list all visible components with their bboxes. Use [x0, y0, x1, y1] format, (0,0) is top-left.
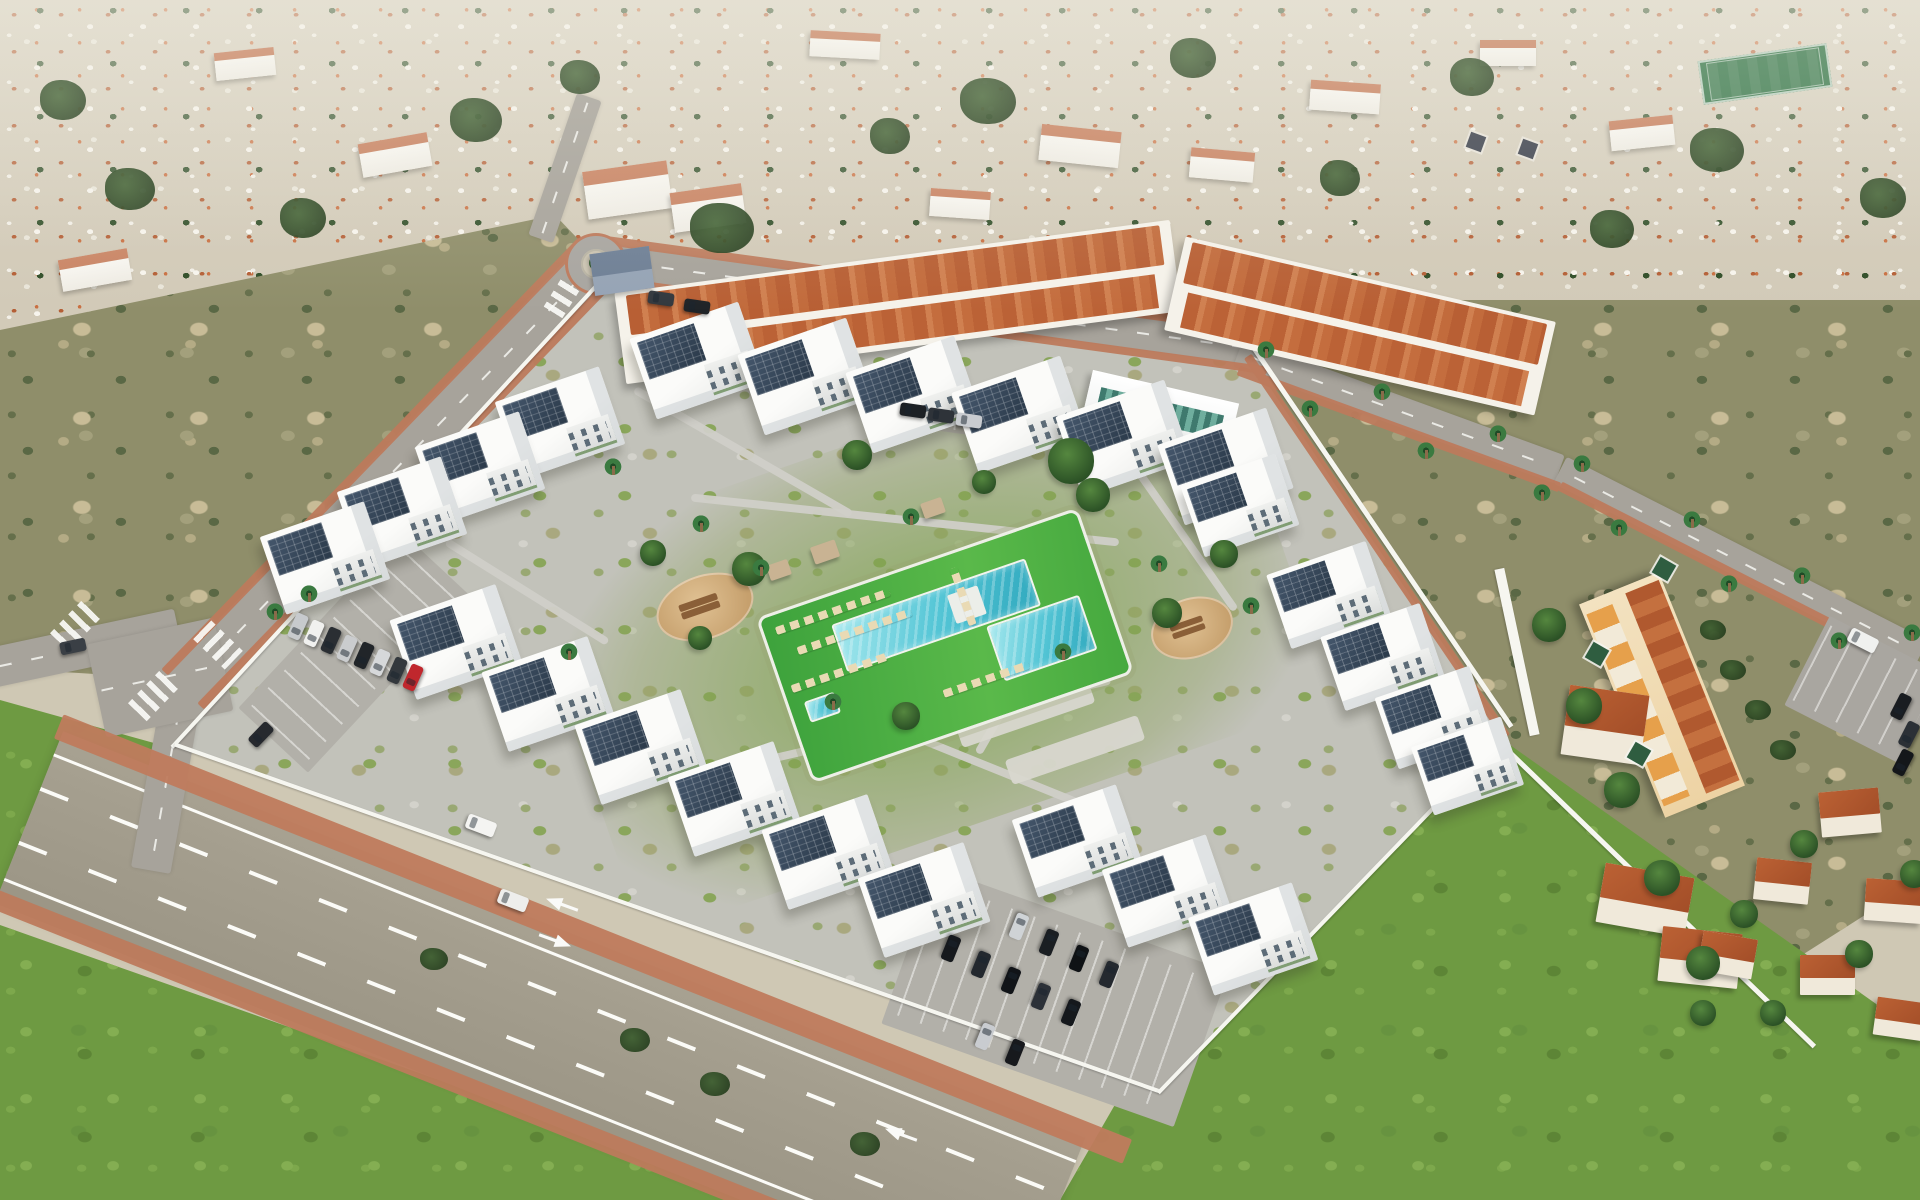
tree-cluster — [1770, 740, 1796, 760]
palm-tree — [1529, 481, 1555, 507]
villa-house — [1818, 787, 1882, 837]
tree-cluster — [700, 1072, 730, 1096]
tree-cluster — [620, 1028, 650, 1052]
tree-cluster — [1860, 178, 1906, 218]
palm-tree — [898, 505, 924, 531]
tree-cluster — [1450, 58, 1494, 96]
tree-cluster — [1720, 660, 1746, 680]
tree-cluster — [1170, 38, 1216, 78]
palm-tree — [1413, 439, 1439, 465]
town-building — [809, 30, 880, 60]
tree — [640, 540, 666, 566]
tree-cluster — [960, 78, 1016, 124]
tree-cluster — [690, 203, 754, 253]
palm-tree — [1606, 516, 1632, 542]
aerial-photo — [0, 0, 1920, 1200]
tree — [688, 626, 712, 650]
tree — [1210, 540, 1238, 568]
town-building — [1189, 147, 1255, 182]
tree — [1566, 688, 1602, 724]
palm-tree — [262, 600, 288, 626]
palm-tree — [1050, 640, 1076, 666]
tree-cluster — [40, 80, 86, 120]
palm-tree — [748, 556, 774, 582]
palm-tree — [296, 582, 322, 608]
palm-tree — [1297, 397, 1323, 423]
tree-cluster — [1690, 128, 1744, 172]
palm-tree — [600, 455, 626, 481]
tree-cluster — [1320, 160, 1360, 196]
tree — [1152, 598, 1182, 628]
villa-house — [1753, 857, 1812, 905]
tree-cluster — [1745, 700, 1771, 720]
palm-tree — [1716, 572, 1742, 598]
sun-loungers-row — [791, 653, 888, 693]
tree — [1048, 438, 1094, 484]
tree — [1644, 860, 1680, 896]
palm-tree — [1146, 552, 1172, 578]
tree — [1760, 1000, 1786, 1026]
tree-cluster — [1590, 210, 1634, 248]
tree — [1686, 946, 1720, 980]
palm-tree — [1899, 621, 1920, 647]
palm-tree — [1789, 564, 1815, 590]
palm-tree — [1679, 508, 1705, 534]
palm-tree — [1569, 452, 1595, 478]
palm-tree — [1253, 338, 1279, 364]
tree-cluster — [450, 98, 502, 142]
tree-cluster — [870, 118, 910, 154]
palm-tree — [556, 640, 582, 666]
tree — [1730, 900, 1758, 928]
palm-tree — [1238, 594, 1264, 620]
tree-cluster — [850, 1132, 880, 1156]
tree-cluster — [560, 60, 600, 94]
tree — [1076, 478, 1110, 512]
tree — [892, 702, 920, 730]
tree — [1900, 860, 1920, 888]
tree-cluster — [1700, 620, 1726, 640]
palm-tree — [1485, 422, 1511, 448]
tree — [1690, 1000, 1716, 1026]
tree-cluster — [105, 168, 155, 210]
blue-roof-house — [589, 246, 654, 296]
tree — [842, 440, 872, 470]
palm-tree — [688, 512, 714, 538]
town-building — [1309, 80, 1381, 115]
palm-tree — [1369, 380, 1395, 406]
villa-house — [1873, 997, 1920, 1042]
tree — [1845, 940, 1873, 968]
tree — [1532, 608, 1566, 642]
sun-loungers-row — [942, 661, 1030, 698]
tree — [1604, 772, 1640, 808]
tree — [972, 470, 996, 494]
tree — [1790, 830, 1818, 858]
town-building — [929, 188, 991, 220]
palm-tree — [820, 690, 846, 716]
tree-cluster — [280, 198, 326, 238]
palm-tree — [1826, 629, 1852, 655]
tree-cluster — [420, 948, 448, 970]
town-building — [1480, 40, 1536, 66]
